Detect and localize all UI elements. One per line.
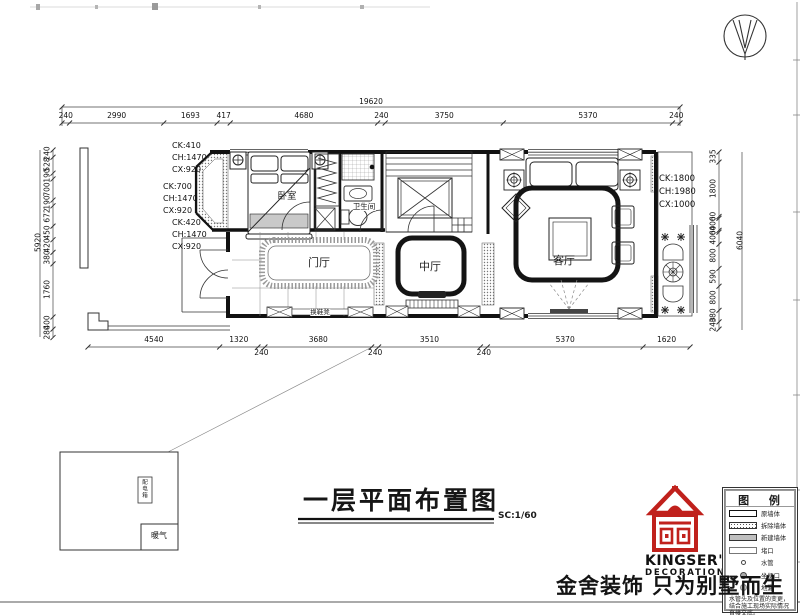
room-label-entry-hall: 门厅 [308, 257, 330, 269]
dim-value: 280 [43, 311, 52, 355]
dim-value: 240 [709, 303, 718, 347]
dim-right-total: 6040 [736, 219, 745, 263]
page-title: 一层平面布置图 [303, 487, 499, 515]
floor-plan-sheet: 卧室 卫生间 门厅 中厅 客厅 换鞋凳 暖气 配电箱 19620 5920 60… [0, 0, 800, 615]
seal-opening-swatch [729, 547, 757, 554]
annotation-line: CK:420 [172, 217, 207, 229]
original-wall-swatch [729, 510, 757, 517]
tv-cabinet-middle [386, 291, 480, 317]
annotation-line: CH:1980 [659, 186, 696, 199]
staircase [386, 152, 472, 232]
dim-value: 417 [216, 112, 230, 120]
tv-living [549, 280, 589, 313]
dim-value: 1620 [657, 336, 676, 344]
sofa [526, 158, 618, 190]
annotation-line: CH:1470 [172, 152, 207, 164]
annotation-line: CK:700 [163, 181, 198, 193]
dim-value: 240 [374, 112, 388, 120]
dim-value: 2990 [107, 112, 126, 120]
bathroom-fixtures [341, 154, 382, 232]
legend-item: 新建墙体 [726, 532, 794, 544]
window-annotation-bedroom-bottom: CK:420CH:1470CX:920 [172, 217, 207, 253]
legend-item: 堵口 [726, 544, 794, 556]
legend-item-label: 拆除墙体 [761, 521, 786, 530]
dim-value: 240 [368, 349, 382, 357]
dim-value: 5370 [578, 112, 597, 120]
legend-item-label: 原墙体 [761, 509, 780, 518]
title-underline [298, 519, 494, 523]
window-annotation-living-right: CK:1800CH:1980CX:1000 [659, 173, 696, 212]
room-label-living-room: 客厅 [553, 255, 575, 267]
dim-value: 240 [59, 112, 73, 120]
new-wall-swatch [729, 534, 757, 541]
annotation-line: CK:1800 [659, 173, 696, 186]
dim-value: 1693 [181, 112, 200, 120]
room-label-middle-hall: 中厅 [419, 261, 441, 273]
annotation-line: CH:1470 [163, 193, 198, 205]
dim-value: 4680 [294, 112, 313, 120]
dim-top-total: 19620 [357, 98, 385, 106]
room-label-bathroom: 卫生间 [353, 203, 376, 211]
annotation-line: CK:410 [172, 140, 207, 152]
annotation-line: CX:1000 [659, 199, 696, 212]
scale-label: SC:1/60 [498, 512, 537, 522]
dim-value: 240 [254, 349, 268, 357]
dim-left-total: 5920 [34, 221, 43, 265]
leader-line [168, 347, 372, 452]
dim-value: 3510 [420, 336, 439, 344]
legend-item-label: 新建墙体 [761, 533, 786, 542]
window-annotation-bedroom-top: CK:410CH:1470CX:920 [172, 140, 207, 176]
top-edge-marks [30, 3, 430, 10]
living-room [500, 149, 642, 319]
label-radiator: 暖气 [151, 532, 167, 541]
legend-item: 拆除墙体 [726, 519, 794, 531]
north-arrow-icon [724, 15, 766, 60]
annotation-line: CX:920 [172, 164, 207, 176]
legend-item: 水管 [726, 557, 794, 569]
label-shoe-bench: 换鞋凳 [310, 309, 330, 316]
dim-value: 240 [669, 112, 683, 120]
window-annotation-bedroom-left: CK:700CH:1470CX:920 [163, 181, 198, 217]
dim-value: 5370 [556, 336, 575, 344]
corner-piers [500, 149, 642, 319]
annotation-line: CX:920 [163, 205, 198, 217]
dim-value: 1320 [229, 336, 248, 344]
annotation-line: CX:920 [172, 241, 207, 253]
demolish-wall-swatch [729, 522, 757, 529]
legend-item: 原墙体 [726, 507, 794, 519]
label-distribution-box: 配电箱 [141, 479, 147, 499]
dim-value: 3680 [309, 336, 328, 344]
armchairs [612, 206, 634, 264]
dim-value: 3750 [435, 112, 454, 120]
dim-value: 240 [477, 349, 491, 357]
legend-item-label: 堵口 [761, 546, 774, 555]
annotation-line: CH:1470 [172, 229, 207, 241]
brand-logo [651, 486, 699, 550]
room-label-bedroom: 卧室 [277, 192, 296, 202]
legend-title: 图 例 [726, 491, 794, 507]
water-pipe-swatch [741, 560, 746, 565]
legend-item-label: 水管 [761, 558, 774, 567]
dim-value: 4540 [144, 336, 163, 344]
brand-tagline: 金舍装饰 只为别墅而生 [556, 574, 784, 597]
floor-plan-drawing [0, 0, 800, 615]
